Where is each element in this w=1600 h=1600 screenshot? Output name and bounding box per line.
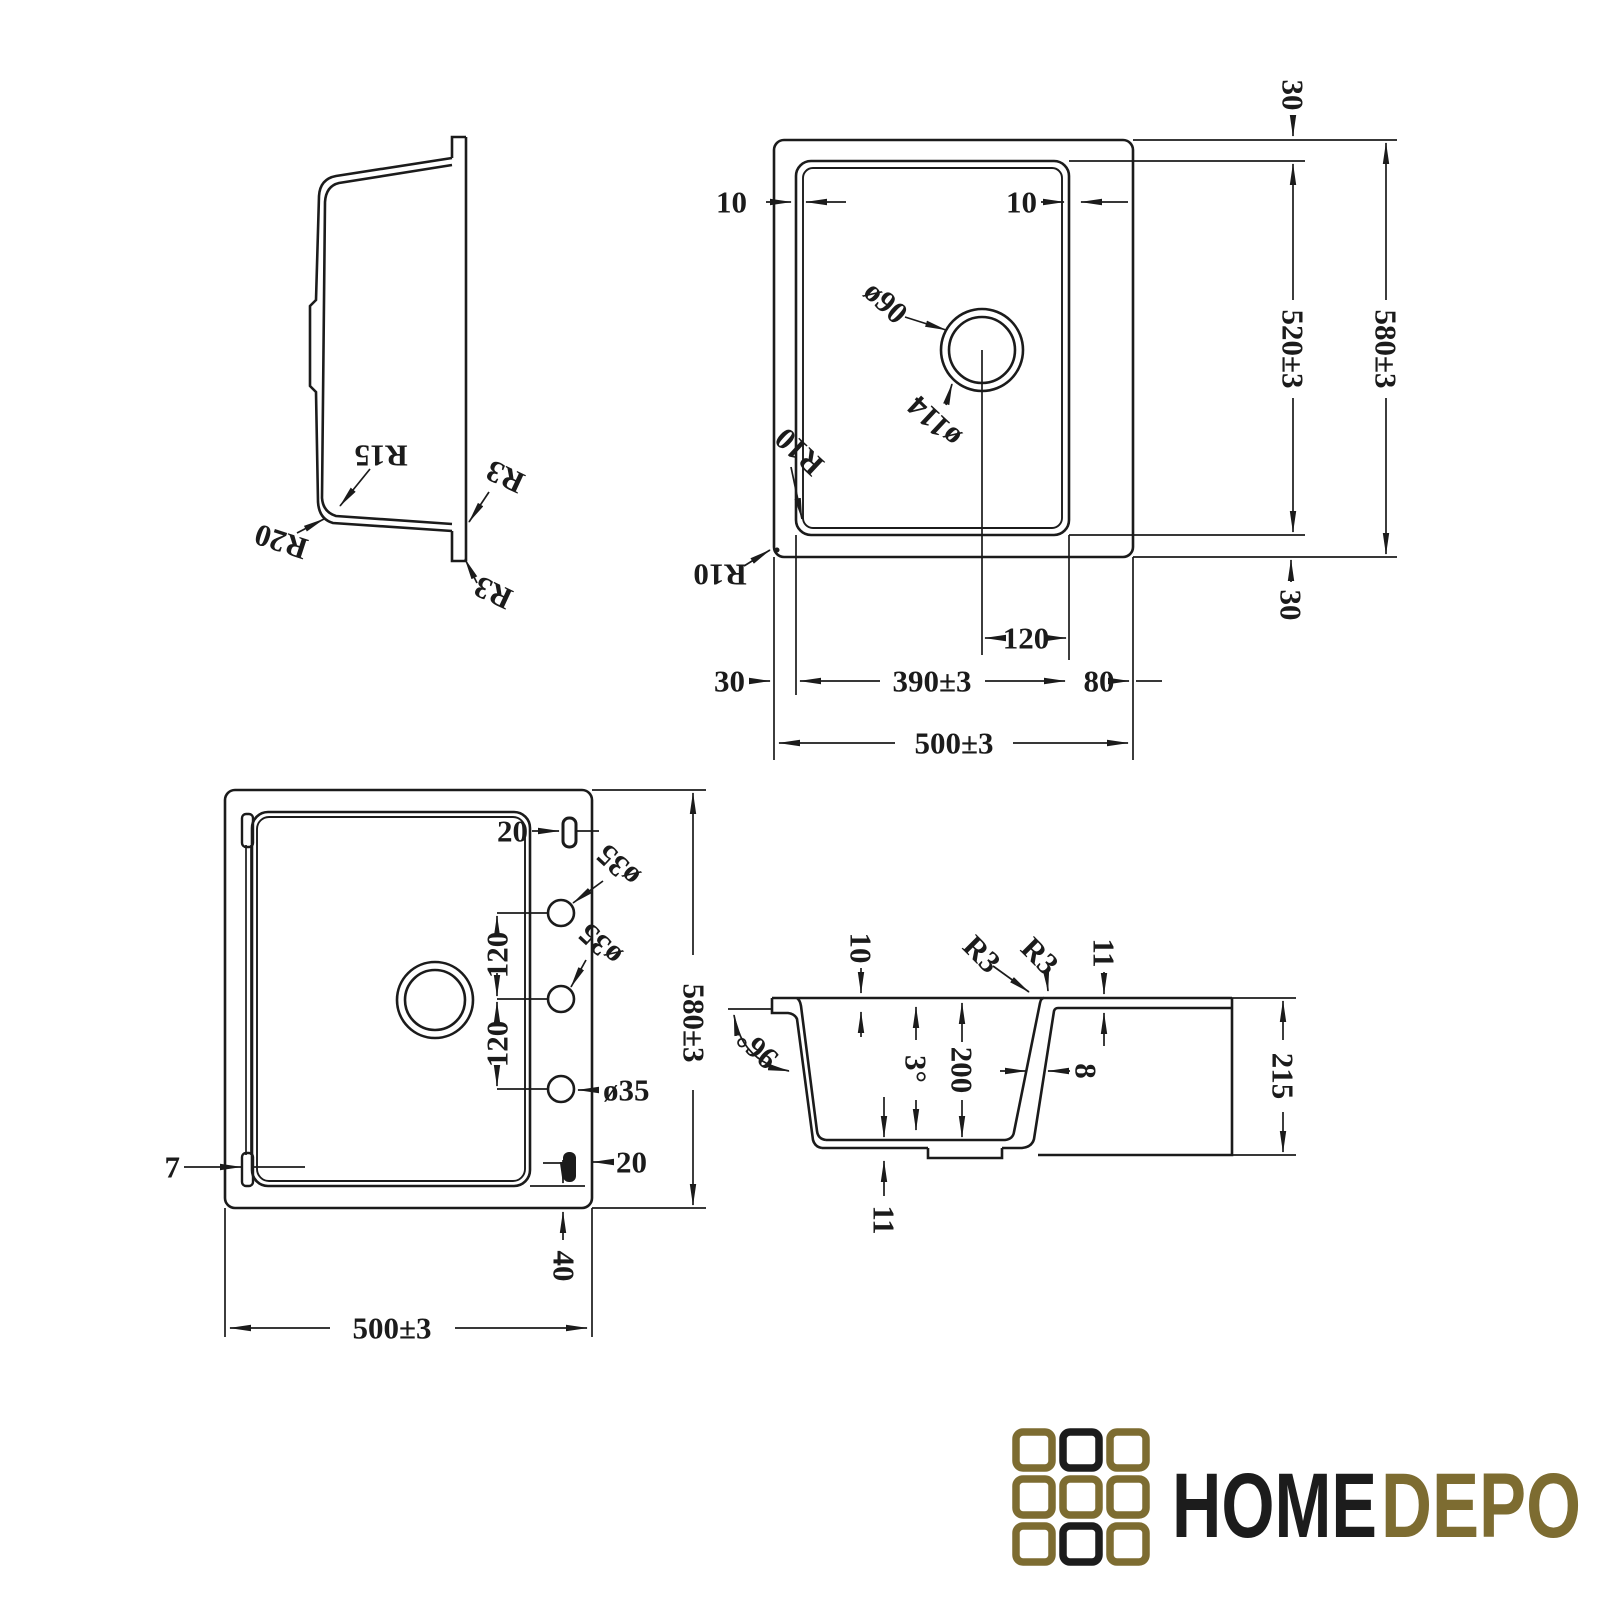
bottom-margin-label: 30: [1274, 590, 1309, 621]
overall-width-top-label: 500±3: [914, 726, 993, 761]
base-inset-label: 40: [547, 1251, 582, 1282]
dim-rim-gap-right: 10: [1006, 185, 1128, 220]
logo: HOMEDEPO: [1016, 1432, 1581, 1562]
corner-radius-outer-label: R10: [693, 558, 746, 593]
overall-length-bottom-label: 580±3: [677, 983, 712, 1062]
logo-grid-cell: [1110, 1432, 1146, 1468]
tap-hole-1-label: ø35: [589, 837, 647, 894]
dim-drain-hole: ø90: [857, 273, 946, 330]
logo-grid-cell: [1016, 1432, 1052, 1468]
bowl-length-label: 520±3: [1276, 309, 1311, 388]
logo-grid-cell: [1016, 1526, 1052, 1562]
top-plan-view: 30 520±3 580±3 30 10 10: [693, 80, 1403, 761]
dim-overall-length-bottom: 580±3: [677, 793, 712, 1205]
dim-bowl-length: 520±3: [1276, 164, 1311, 532]
dim-tap-hole-2: ø35: [571, 916, 629, 987]
section-left-wall-outer: [772, 998, 822, 1148]
edge-lip-label: 7: [165, 1150, 181, 1185]
tap-spacing-1-label: 120: [480, 932, 515, 979]
dim-clip-top: 20: [497, 814, 599, 849]
logo-text-depo: DEPO: [1381, 1455, 1581, 1557]
tap-hole-3-circle: [548, 1076, 574, 1102]
draft-angle-label: 3°: [899, 1055, 934, 1083]
bowl-width-label: 390±3: [892, 664, 971, 699]
dim-rim-gap-left: 10: [716, 185, 846, 220]
rim-gap-left-label: 10: [716, 185, 747, 220]
overall-length-label: 580±3: [1369, 309, 1404, 388]
tap-hole-3-label: ø35: [603, 1073, 650, 1108]
left-margin-label: 30: [714, 664, 745, 699]
profile-top-tab: [452, 137, 466, 158]
logo-grid: [1016, 1432, 1146, 1562]
r3-lower-leader: [465, 559, 477, 583]
clip-bottom-label: 20: [616, 1145, 647, 1180]
drain-recess-label: ø114: [900, 389, 968, 456]
rim-radius-right-label: R3: [1014, 930, 1066, 982]
dim-bottom-margin: 30: [1274, 560, 1309, 621]
dim-outer-wall-angle: 96°: [728, 1009, 789, 1077]
dim-base-thickness: 11: [867, 1097, 902, 1235]
dim-corner-radius-outer: R10: [693, 550, 770, 593]
top-margin-label: 30: [1276, 80, 1311, 111]
base-thickness-label: 11: [867, 1205, 902, 1234]
logo-grid-cell: [1016, 1479, 1052, 1515]
dim-rim-radius-left: R3: [956, 928, 1029, 992]
section-bowl-inner: [826, 998, 1044, 1140]
bottom-drain-hole: [405, 970, 465, 1030]
logo-grid-cell: [1110, 1526, 1146, 1562]
bottom-bowl-rect: [252, 812, 530, 1186]
right-margin-label: 80: [1084, 664, 1115, 699]
logo-grid-cell: [1063, 1432, 1099, 1468]
clip-slot-bottom: [563, 1152, 576, 1182]
bottom-drain-recess: [397, 962, 473, 1038]
bottom-view: 20 ø35 ø35 120 120 ø35 580±3: [165, 790, 712, 1346]
clip-slot-top: [563, 818, 576, 847]
drawing-canvas: R15 R20 R3 R3 30: [0, 0, 1600, 1600]
r15-label: R15: [354, 439, 407, 474]
dim-rim-radius-right: R3: [1014, 930, 1066, 991]
dim-top-margin: 30: [1276, 80, 1311, 137]
dim-overall-width-top: 500±3: [779, 726, 1128, 761]
logo-grid-cell: [1110, 1479, 1146, 1515]
profile-outer-wall: [310, 158, 452, 531]
dim-drain-offset: 120: [985, 621, 1066, 656]
overall-height-label: 215: [1266, 1053, 1301, 1100]
corner-radius-inner-label: R10: [768, 421, 831, 483]
logo-text-home: HOME: [1172, 1455, 1377, 1557]
section-left-wall-inner: [797, 998, 826, 1140]
dim-overall-width-bottom: 500±3: [230, 1311, 587, 1346]
drawing-page: R15 R20 R3 R3 30: [0, 0, 1600, 1600]
wall-thickness-label: 8: [1069, 1063, 1104, 1079]
tap-hole-1-circle: [548, 900, 574, 926]
logo-grid-cell: [1063, 1479, 1099, 1515]
rim-width-label: 10: [844, 933, 879, 964]
clip-top-label: 20: [497, 814, 528, 849]
r15-leader: [340, 469, 370, 506]
drain-offset-label: 120: [1003, 621, 1050, 656]
dim-tap-spacing-1: 120: [480, 916, 515, 996]
dim-bowl-width: 390±3: [800, 664, 1065, 699]
dim-overall-height: 215: [1232, 998, 1301, 1155]
r20-label: R20: [250, 517, 312, 567]
dim-bowl-depth: 200: [945, 1003, 980, 1137]
tap-hole-2-circle: [548, 986, 574, 1012]
dim-edge-lip: 7: [165, 1150, 306, 1185]
tap-hole-2-label: ø35: [571, 916, 629, 973]
dim-tap-hole-1: ø35: [573, 837, 647, 903]
tap-spacing-2-label: 120: [480, 1021, 515, 1068]
bowl-depth-label: 200: [945, 1047, 980, 1094]
dim-wall-thickness: 8: [1000, 1063, 1104, 1079]
dim-overall-length: 580±3: [1369, 143, 1404, 554]
dim-left-margin: 30: [714, 664, 770, 699]
dim-drain-recess: ø114: [900, 384, 968, 455]
logo-wordmark: HOMEDEPO: [1172, 1455, 1581, 1557]
rim-gap-right-label: 10: [1006, 185, 1037, 220]
logo-grid-cell: [1063, 1526, 1099, 1562]
r3-lower-label: R3: [468, 569, 517, 617]
drain-hole-label: ø90: [857, 273, 915, 330]
dim-clip-bottom: 20: [543, 1145, 647, 1180]
overall-width-bottom-label: 500±3: [352, 1311, 431, 1346]
section-view: 10 R3 R3 11 96° 3° 200: [728, 928, 1301, 1234]
profile-bottom-foot: [452, 531, 466, 561]
dim-rim-thickness: 11: [1087, 938, 1122, 1046]
dim-tap-spacing-2: 120: [480, 1002, 515, 1086]
dim-rim-width: 10: [844, 933, 879, 1038]
side-profile-view: R15 R20 R3 R3: [250, 137, 529, 617]
dim-corner-radius-inner: R10: [768, 421, 831, 519]
section-right-edge: [1038, 998, 1232, 1155]
dim-tap-hole-3: ø35: [578, 1073, 650, 1108]
r3-upper-leader: [469, 492, 489, 522]
bottom-bowl-inner: [257, 817, 525, 1181]
dim-draft-angle: 3°: [899, 1007, 934, 1130]
dim-right-margin: 80: [1084, 664, 1163, 699]
rim-thickness-label: 11: [1087, 938, 1122, 967]
corner-reference-dot: [775, 548, 780, 553]
